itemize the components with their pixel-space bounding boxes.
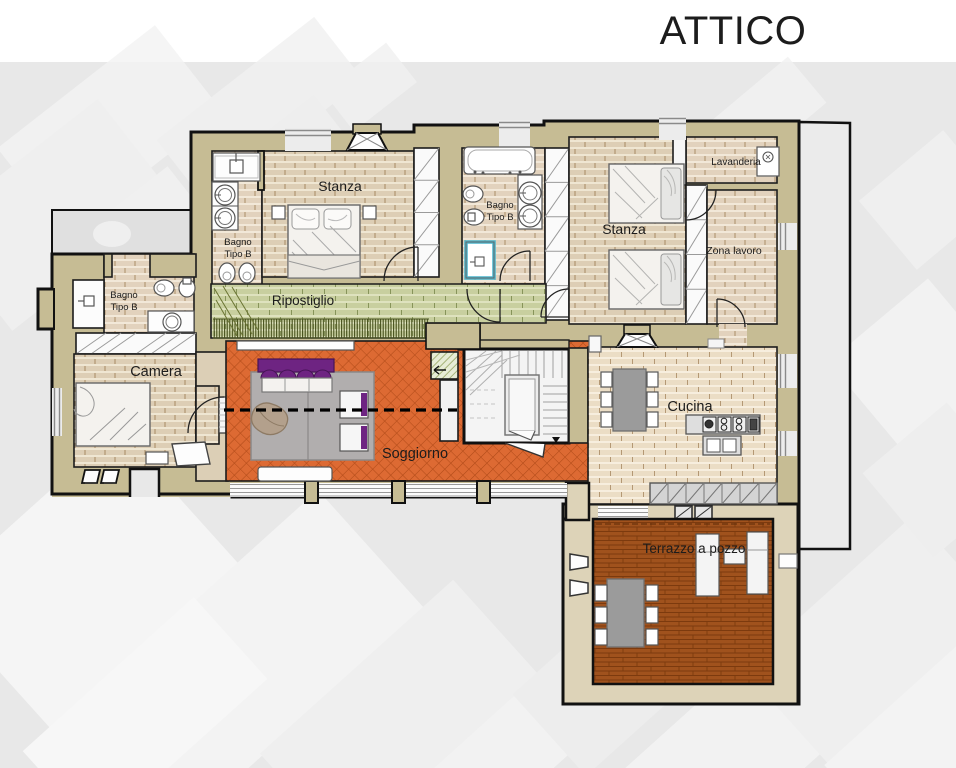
svg-text:Tipo B: Tipo B: [110, 302, 137, 313]
svg-text:Bagno: Bagno: [110, 290, 137, 301]
svg-text:Stanza: Stanza: [602, 221, 646, 237]
svg-text:Zona lavoro: Zona lavoro: [706, 245, 762, 257]
svg-text:ATTICO: ATTICO: [660, 9, 807, 53]
svg-text:Soggiorno: Soggiorno: [382, 446, 448, 462]
svg-text:Bagno: Bagno: [486, 200, 513, 211]
svg-text:Stanza: Stanza: [318, 178, 362, 194]
svg-text:Bagno: Bagno: [224, 237, 251, 248]
svg-text:Tipo B: Tipo B: [486, 212, 513, 223]
svg-text:Camera: Camera: [130, 364, 183, 380]
svg-text:Tipo B: Tipo B: [224, 249, 251, 260]
svg-text:Cucina: Cucina: [667, 399, 713, 415]
svg-text:Ripostiglio: Ripostiglio: [272, 293, 334, 308]
svg-text:Terrazzo a pozzo: Terrazzo a pozzo: [643, 541, 746, 556]
svg-text:Lavanderia: Lavanderia: [711, 157, 761, 168]
